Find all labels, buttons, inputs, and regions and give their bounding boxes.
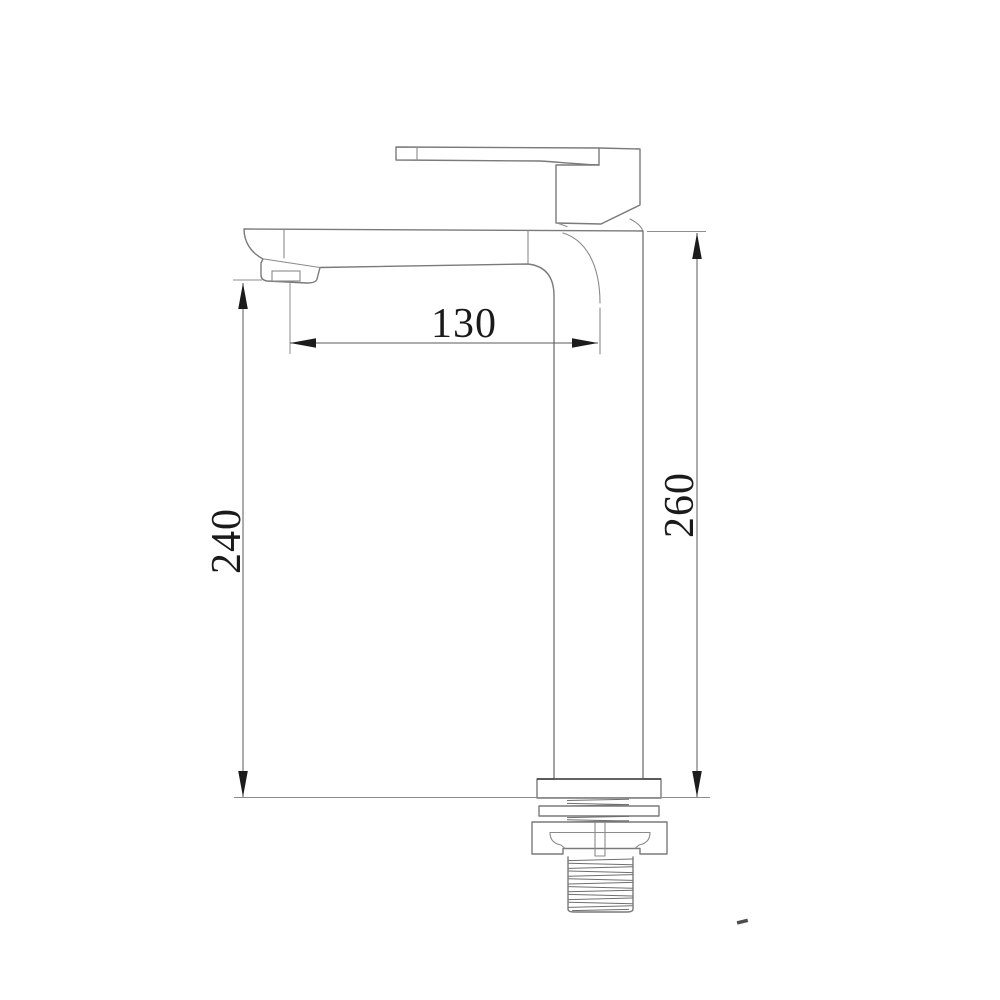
artifact-mark <box>737 919 749 925</box>
gasket-washer <box>539 806 659 816</box>
mounting-nut <box>532 822 667 856</box>
aerator-insert <box>272 271 300 281</box>
mounting-hardware <box>532 799 667 912</box>
dimension-240: 240 <box>204 280 262 797</box>
handle-body-outline <box>556 148 640 224</box>
dimension-240-arrow-bottom <box>238 771 248 797</box>
dimension-130-label: 130 <box>431 301 497 347</box>
dimension-260-label: 260 <box>657 472 703 538</box>
technical-drawing-page: 130 240 260 <box>0 0 1000 1000</box>
dimension-260-arrow-bottom <box>692 771 702 797</box>
shank-thread-upper <box>567 799 629 806</box>
handle-lever <box>396 147 599 165</box>
nut-inner-left-fillet <box>550 833 565 849</box>
dimension-130-arrow-right <box>572 338 598 348</box>
dimension-130-arrow-left <box>290 338 316 348</box>
aerator-housing-top-edge <box>264 259 320 268</box>
faucet-dimension-drawing: 130 240 260 <box>0 0 1000 1000</box>
threaded-shank <box>568 857 633 912</box>
dimension-260-arrow-top <box>692 233 702 259</box>
handle-lever-outline <box>396 147 599 165</box>
dimension-240-label: 240 <box>204 508 250 574</box>
dimension-260: 260 <box>647 232 706 798</box>
spout-bend-inner-curve <box>563 233 600 303</box>
nut-inner-right-fillet <box>635 833 650 849</box>
dimension-130: 130 <box>290 283 598 354</box>
shank-thread-middle <box>567 816 629 822</box>
mounting-nut-outline <box>532 822 667 854</box>
dimension-240-arrow-top <box>238 283 248 309</box>
threaded-shank-threads <box>569 859 633 911</box>
handle-body-neck-arc <box>630 219 643 232</box>
